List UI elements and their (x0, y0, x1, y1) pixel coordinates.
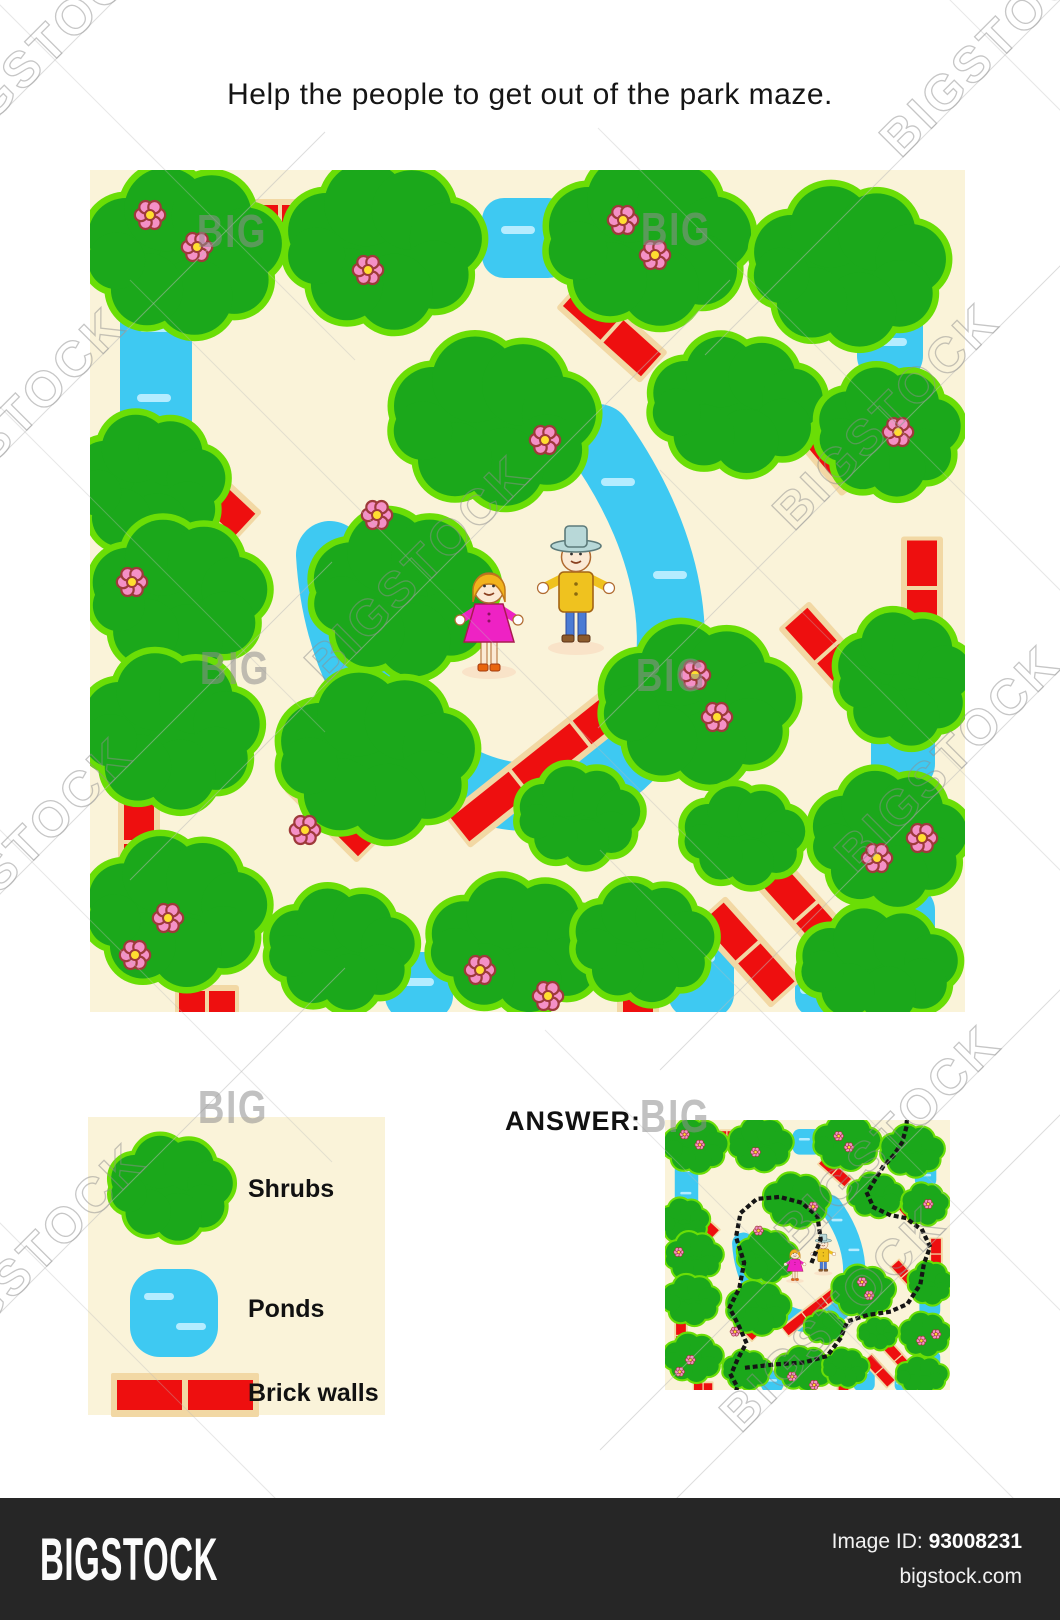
park-maze-drawing (90, 170, 965, 1012)
page-title: Help the people to get out of the park m… (0, 78, 1060, 112)
park-maze (90, 170, 965, 1012)
legend-label-shrubs: Shrubs (248, 1175, 334, 1204)
answer-maze (665, 1120, 950, 1390)
image-id-label: Image ID: (832, 1530, 923, 1553)
image-id-value: 93008231 (929, 1530, 1022, 1553)
pond-icon (128, 1267, 220, 1359)
shrub-icon (102, 1129, 242, 1247)
site-line: bigstock.com (832, 1559, 1022, 1594)
bigstock-logo: BIGSTOCK (40, 1525, 218, 1594)
image-id-line: Image ID: 93008231 (832, 1524, 1022, 1559)
answer-maze-drawing (665, 1120, 950, 1390)
legend-box: Shrubs Ponds Brick walls (88, 1117, 385, 1415)
answer-label: ANSWER: (505, 1106, 641, 1137)
legend-label-brick-walls: Brick walls (248, 1379, 379, 1408)
footer-meta: Image ID: 93008231 bigstock.com (832, 1524, 1022, 1594)
brick-wall-icon (110, 1372, 260, 1418)
legend-label-ponds: Ponds (248, 1295, 324, 1324)
